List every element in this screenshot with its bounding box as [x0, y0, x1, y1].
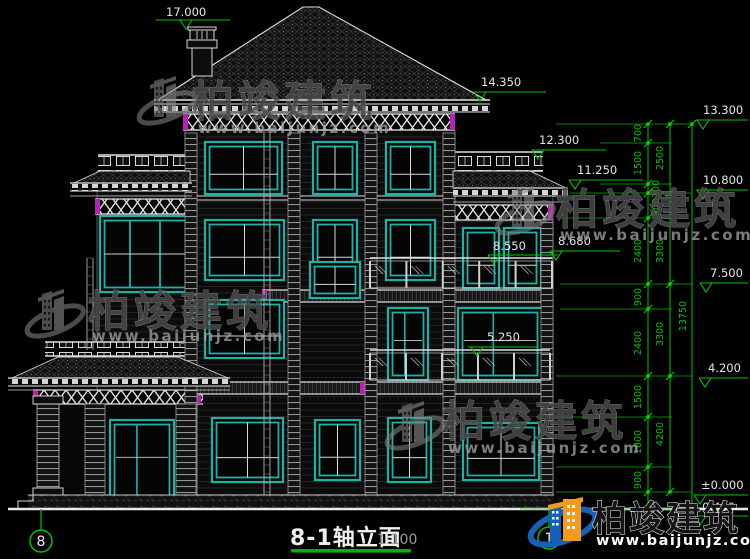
- watermark-url-right: www.baijunjz.com: [560, 226, 750, 244]
- drawing-title-block: 8-1轴立面 1:100: [290, 525, 417, 553]
- dimension-labels: 700 1500 300 900 2400 900 2400 1500 1800…: [633, 124, 689, 489]
- dim-1500: 1500: [633, 151, 644, 175]
- dim-900b: 900: [633, 288, 644, 306]
- level-12300: 12.300: [539, 133, 579, 147]
- level-7500: 7.500: [710, 266, 743, 280]
- level-8550: 8.550: [493, 239, 526, 253]
- dim-900c: 900: [633, 471, 644, 489]
- watermark-url-top: www.baijunjz.com: [198, 119, 391, 137]
- watermark-url-bottom: www.baijunjz.com: [448, 439, 641, 457]
- dim-2500: 2500: [655, 146, 666, 170]
- axis-number-left: 8: [37, 534, 46, 550]
- dim-2400b: 2400: [633, 331, 644, 355]
- title-underline: [291, 549, 411, 553]
- level-zero: ±0.000: [701, 478, 744, 492]
- brand-logo: 柏竣建筑 www.baijunjz.com: [526, 497, 750, 552]
- level-13300: 13.300: [703, 103, 743, 117]
- level-4200: 4.200: [708, 361, 741, 375]
- dim-total-13750: 13750: [678, 301, 689, 331]
- watermark-url-left: www.baijunjz.com: [92, 327, 285, 345]
- dim-3300b: 3300: [655, 322, 666, 346]
- level-5250: 5.250: [487, 330, 520, 344]
- axis-bubble-8: 8: [30, 509, 52, 552]
- dim-700: 700: [633, 124, 644, 142]
- elevation-drawing: 700 1500 300 900 2400 900 2400 1500 1800…: [0, 0, 750, 559]
- level-14350: 14.350: [481, 75, 521, 89]
- level-17000: 17.000: [166, 5, 206, 19]
- brand-logo-url: www.baijunjz.com: [596, 533, 750, 549]
- dim-4200: 4200: [655, 422, 666, 446]
- architectural-drawing-canvas: 700 1500 300 900 2400 900 2400 1500 1800…: [0, 0, 750, 559]
- level-11250: 11.250: [577, 163, 617, 177]
- dim-1500b: 1500: [633, 385, 644, 409]
- drawing-scale: 1:100: [377, 532, 417, 548]
